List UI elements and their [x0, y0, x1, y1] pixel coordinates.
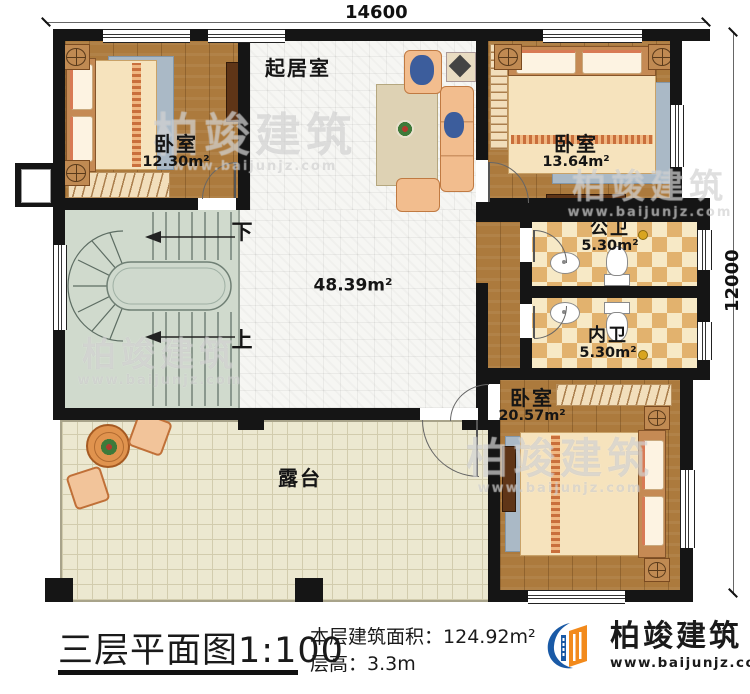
door-gap: [198, 198, 236, 210]
flue-box: [21, 169, 51, 203]
wall-bedroom1-living: [238, 29, 250, 210]
wall-bath-divider: [532, 286, 697, 298]
wall-left: [53, 29, 65, 420]
plan-stats: 本层建筑面积：124.92m² 层高：3.3m: [310, 624, 536, 678]
person: [444, 112, 464, 138]
dresser-icon: [502, 446, 516, 512]
right-dimension-line: [733, 32, 734, 595]
nightstand: [62, 44, 90, 70]
window-icon: [208, 29, 285, 43]
nightstand: [494, 44, 522, 70]
light-icon: [638, 350, 648, 360]
stairs-icon: [65, 210, 238, 408]
pillow: [642, 440, 664, 490]
brand-logo: 柏竣建筑 www.baijunjz.com: [540, 618, 750, 674]
hall-floor: [238, 210, 476, 408]
plant-icon: [396, 120, 414, 138]
door-leaf: [234, 162, 236, 198]
window-icon: [670, 105, 684, 167]
door-leaf: [533, 306, 535, 338]
pillow: [70, 116, 93, 162]
nightstand: [62, 160, 90, 186]
door-gap: [520, 304, 532, 338]
floor-plan-canvas: 14600 12000: [0, 0, 750, 694]
door-leaf: [533, 230, 535, 262]
terrace-column: [45, 578, 73, 602]
wardrobe-icon: [556, 384, 672, 406]
brand-name: 柏竣建筑: [610, 622, 750, 652]
window-icon: [697, 230, 712, 270]
bedroom-topleft-label: 卧室 12.30m²: [142, 133, 209, 171]
right-dimension-label: 12000: [722, 249, 743, 312]
stairs-up-label: 上: [232, 324, 253, 354]
door-gap: [476, 160, 488, 202]
table-plant: [94, 432, 124, 462]
public-bath-label: 公卫 5.30m²: [581, 219, 638, 255]
pillow: [516, 50, 576, 74]
pillow: [582, 50, 642, 74]
door-leaf: [488, 162, 490, 202]
floor-height-label: 层高：: [310, 653, 367, 675]
bedroom-topright-label: 卧室 13.64m²: [542, 133, 609, 171]
lamp-icon: [449, 55, 472, 78]
terrace-column: [295, 578, 323, 602]
pillow: [642, 496, 664, 546]
living-room-label: 起居室: [265, 57, 331, 79]
bed-quilt-stripe: [551, 435, 560, 553]
floor-height-value: 3.3m: [367, 653, 416, 675]
window-icon: [528, 590, 625, 604]
bed-icon: [520, 432, 640, 556]
person: [410, 55, 434, 85]
window-icon: [697, 322, 712, 360]
pillow: [70, 64, 93, 110]
hall-area-label: 48.39m²: [314, 277, 393, 296]
bedroom-bottomright-label: 卧室 20.57m²: [498, 387, 565, 425]
side-table: [446, 52, 476, 82]
brand-url: www.baijunjz.com: [610, 655, 750, 671]
sofa-icon: [396, 178, 440, 212]
wall-bath-bottom: [488, 368, 710, 380]
logo-icon: [540, 618, 602, 674]
top-dimension-label: 14600: [345, 2, 408, 23]
bed-quilt-stripe: [132, 63, 141, 167]
floor-area-value: 124.92m²: [443, 626, 536, 648]
table-icon: [86, 424, 130, 468]
window-icon: [543, 29, 642, 43]
column: [238, 408, 264, 430]
stairs-down-label: 下: [232, 216, 253, 246]
door-gap: [520, 228, 532, 262]
window-icon: [53, 245, 67, 330]
nightstand: [644, 558, 670, 582]
sofa-icon: [440, 86, 474, 192]
light-icon: [638, 230, 648, 240]
window-icon: [103, 29, 190, 43]
window-icon: [680, 470, 695, 548]
terrace-label: 露台: [278, 467, 322, 489]
nightstand: [644, 406, 670, 430]
private-bath-label: 内卫 5.30m²: [579, 326, 636, 362]
floor-area-label: 本层建筑面积：: [310, 626, 443, 648]
plan-title: 三层平面图1:100: [58, 622, 344, 673]
title-underline: [58, 670, 298, 675]
door-leaf: [476, 420, 478, 476]
